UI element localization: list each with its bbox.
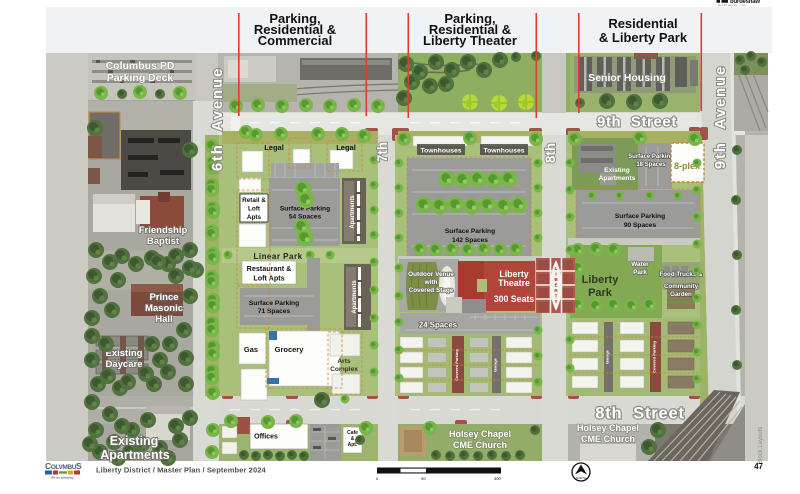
svg-text:Baptist: Baptist — [147, 236, 180, 247]
svg-text:Apts: Apts — [247, 214, 262, 221]
svg-text:Townhouses: Townhouses — [483, 148, 524, 155]
svg-text:Senior Housing: Senior Housing — [588, 72, 666, 84]
svg-text:E: E — [554, 283, 557, 288]
svg-text:8th: 8th — [543, 143, 558, 163]
svg-text:300 Seats: 300 Seats — [494, 294, 535, 304]
svg-text:We do amazing.: We do amazing. — [51, 475, 74, 479]
svg-text:Loft: Loft — [248, 206, 261, 213]
svg-text:Offices: Offices — [254, 434, 278, 441]
svg-text:47: 47 — [754, 462, 763, 471]
svg-text:Columbus PD: Columbus PD — [106, 60, 175, 72]
svg-text:Existing: Existing — [110, 434, 159, 448]
svg-text:24 Spaces: 24 Spaces — [419, 321, 458, 330]
svg-text:Y: Y — [554, 299, 557, 304]
svg-text:Friendship: Friendship — [139, 225, 188, 236]
svg-text:Community: Community — [664, 283, 699, 290]
svg-text:300': 300' — [494, 476, 502, 481]
svg-text:9th Avenue: 9th Avenue — [712, 65, 729, 169]
svg-text:Grocery: Grocery — [275, 345, 305, 354]
svg-text:Holsey Chapel: Holsey Chapel — [577, 423, 639, 433]
svg-text:Liberty District / Master: Liberty District / Master Plan / Septemb… — [96, 466, 266, 475]
svg-text:Covered Stage: Covered Stage — [409, 287, 454, 294]
svg-text:Park: Park — [588, 287, 613, 299]
svg-text:L: L — [555, 266, 558, 271]
svg-text:Liberty: Liberty — [582, 274, 620, 286]
svg-text:Gas: Gas — [244, 345, 258, 354]
svg-text:Hall: Hall — [155, 314, 172, 325]
svg-text:I: I — [555, 272, 556, 277]
svg-text:Liberty Theater: Liberty Theater — [423, 33, 517, 48]
svg-text:with: with — [424, 279, 438, 286]
svg-text:Surface Parking: Surface Parking — [445, 228, 495, 235]
svg-text:7th: 7th — [375, 142, 390, 162]
svg-text:Block Layouts: Block Layouts — [758, 427, 764, 464]
svg-text:CME Church: CME Church — [453, 440, 507, 450]
svg-text:Surface Parking: Surface Parking — [249, 300, 299, 307]
svg-text:9th Street: 9th Street — [597, 114, 677, 131]
svg-text:Restaurant &: Restaurant & — [247, 264, 292, 273]
svg-text:Loft Apts: Loft Apts — [253, 274, 284, 283]
svg-text:Apartments: Apartments — [100, 448, 170, 462]
svg-text:Garage: Garage — [493, 357, 498, 372]
svg-text:Surface Parking: Surface Parking — [615, 213, 665, 220]
svg-text:90 Spaces: 90 Spaces — [624, 222, 657, 229]
svg-text:Parking Deck: Parking Deck — [107, 72, 174, 84]
svg-text:Legal: Legal — [264, 143, 284, 152]
svg-text:Covered Parking: Covered Parking — [652, 341, 657, 373]
svg-text:Theatre: Theatre — [498, 278, 530, 288]
svg-text:Arts: Arts — [337, 358, 351, 365]
svg-text:Holsey Chapel: Holsey Chapel — [449, 429, 511, 439]
svg-text:Park: Park — [633, 269, 647, 276]
svg-text:Surface Parking: Surface Parking — [628, 154, 674, 160]
svg-text:Garage: Garage — [605, 349, 610, 364]
svg-text:Daycare: Daycare — [106, 359, 143, 370]
svg-text:Residential: Residential — [608, 16, 677, 31]
svg-text:71 Spaces: 71 Spaces — [258, 308, 291, 315]
svg-text:Apartments: Apartments — [350, 195, 356, 229]
svg-text:Apartments: Apartments — [352, 280, 358, 314]
svg-text:Commercial: Commercial — [258, 33, 332, 48]
svg-text:Retail &: Retail & — [242, 197, 266, 204]
svg-text:Garden: Garden — [670, 291, 692, 298]
svg-text:Existing: Existing — [604, 167, 630, 174]
svg-text:Linear Park: Linear Park — [253, 252, 302, 261]
svg-text:90': 90' — [421, 476, 426, 481]
svg-text:NORTH: NORTH — [576, 476, 586, 480]
svg-text:Townhouses: Townhouses — [420, 148, 461, 155]
svg-text:8th Street: 8th Street — [595, 405, 685, 423]
svg-text:18 Spaces: 18 Spaces — [636, 162, 666, 168]
svg-text:Complex: Complex — [330, 366, 358, 373]
svg-text:Outdoor Venue: Outdoor Venue — [408, 271, 454, 278]
svg-text:6th Avenue: 6th Avenue — [209, 67, 226, 171]
svg-text:& Liberty Park: & Liberty Park — [599, 30, 688, 45]
svg-text:architects, inc.: architects, inc. — [718, 3, 748, 7]
svg-text:Apartments: Apartments — [599, 175, 636, 182]
svg-text:Prince: Prince — [149, 292, 178, 303]
svg-text:Legal: Legal — [336, 143, 356, 152]
svg-text:Water: Water — [631, 261, 649, 268]
svg-text:T: T — [555, 294, 558, 299]
svg-text:Masonic: Masonic — [145, 303, 183, 314]
svg-text:CME Church: CME Church — [581, 434, 635, 444]
